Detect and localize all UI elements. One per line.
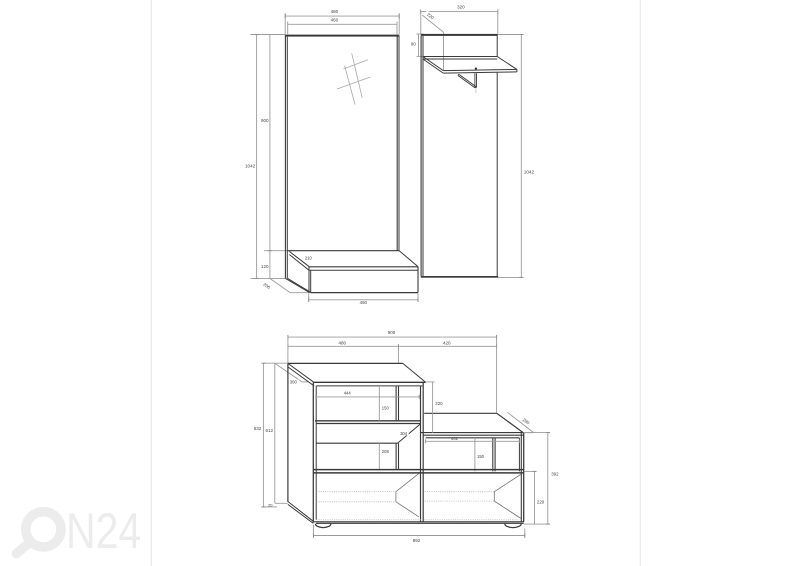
svg-text:444: 444 bbox=[344, 390, 352, 395]
svg-text:460: 460 bbox=[331, 18, 339, 23]
svg-text:480: 480 bbox=[338, 341, 346, 346]
svg-text:320: 320 bbox=[457, 5, 465, 10]
svg-text:208: 208 bbox=[382, 449, 390, 454]
svg-text:220: 220 bbox=[537, 500, 545, 505]
svg-text:150: 150 bbox=[477, 454, 485, 459]
svg-text:402: 402 bbox=[451, 436, 459, 441]
svg-text:304: 304 bbox=[400, 431, 408, 436]
svg-text:N24: N24 bbox=[66, 503, 141, 559]
svg-text:150: 150 bbox=[382, 405, 390, 410]
svg-text:480: 480 bbox=[331, 9, 339, 14]
svg-text:90: 90 bbox=[411, 41, 416, 46]
svg-text:892: 892 bbox=[413, 538, 421, 543]
svg-text:1042: 1042 bbox=[524, 170, 535, 175]
svg-text:900: 900 bbox=[261, 118, 269, 123]
svg-text:900: 900 bbox=[388, 330, 396, 335]
svg-text:20: 20 bbox=[268, 502, 273, 507]
svg-text:300: 300 bbox=[290, 380, 298, 385]
svg-text:612: 612 bbox=[265, 428, 273, 433]
svg-text:460: 460 bbox=[360, 300, 368, 305]
svg-text:632: 632 bbox=[254, 426, 262, 431]
svg-text:210: 210 bbox=[305, 256, 313, 261]
svg-text:120: 120 bbox=[261, 264, 269, 269]
svg-text:420: 420 bbox=[443, 341, 451, 346]
svg-text:392: 392 bbox=[551, 471, 559, 476]
svg-text:220: 220 bbox=[435, 401, 443, 406]
svg-text:1042: 1042 bbox=[245, 163, 256, 168]
